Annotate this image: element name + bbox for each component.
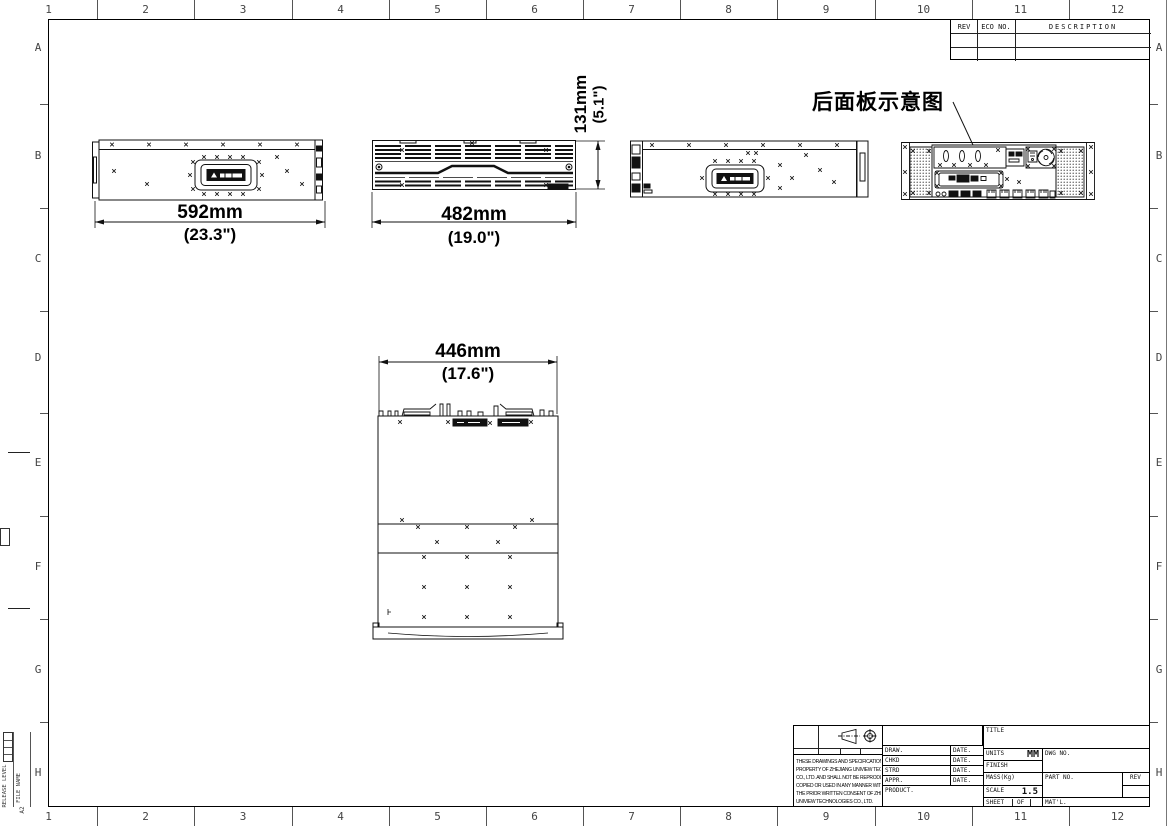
grid-col-label: 6	[486, 3, 583, 16]
vent-grille-bottom	[375, 182, 573, 186]
paper-size-label: A2	[19, 800, 27, 820]
grid-col-label: 3	[194, 3, 292, 16]
power-supply-module	[1026, 147, 1056, 168]
grid-col-label: 11	[972, 810, 1069, 823]
grid-row-tick	[40, 208, 48, 209]
vent-grille-top	[375, 146, 573, 158]
grid-col-tick	[972, 807, 973, 826]
grid-row-tick	[1150, 516, 1158, 517]
grid-row-label: C	[30, 252, 46, 265]
grid-row-label: D	[1151, 351, 1167, 364]
grid-col-tick	[680, 807, 681, 826]
dim-top-width-mm: 446mm	[398, 341, 538, 363]
rev-cell: REV	[1122, 772, 1150, 786]
fan-icon	[1038, 149, 1055, 166]
grid-row-tick	[40, 722, 48, 723]
dim-height-mm: 131mm	[571, 69, 591, 139]
proprietary-notice: THESE DRAWINGS AND SPECIFICATION ARE THE…	[793, 754, 883, 807]
title-cell: TITLE	[983, 725, 1150, 749]
grid-col-label: 5	[389, 3, 486, 16]
grid-col-tick	[875, 0, 876, 19]
empty-cell	[882, 725, 983, 746]
dim-side-width-mm: 592mm	[140, 202, 280, 224]
grid-row-label: A	[1151, 41, 1167, 54]
grid-col-label: 1	[0, 3, 97, 16]
grid-row-label: E	[1151, 456, 1167, 469]
grid-col-label: 12	[1069, 3, 1166, 16]
grid-row-label: G	[1151, 663, 1167, 676]
grid-row-label: D	[30, 351, 46, 364]
screw-marks	[400, 518, 534, 619]
dim-top-width-in: (17.6")	[398, 364, 538, 384]
grid-col-tick	[97, 0, 98, 19]
grid-col-label: 9	[777, 3, 875, 16]
grid-col-label: 3	[194, 810, 292, 823]
grid-col-tick	[777, 807, 778, 826]
side-view-right	[630, 140, 869, 198]
front-label-plate	[548, 184, 568, 189]
grid-col-tick	[389, 0, 390, 19]
grid-row-tick	[1150, 722, 1158, 723]
drawing-sheet: 123456789101112 123456789101112 ABCDEFGH…	[0, 0, 1169, 826]
eco-header: ECO NO.	[977, 23, 1015, 31]
grid-col-label: 10	[875, 3, 972, 16]
grid-col-tick	[292, 0, 293, 19]
grid-col-label: 5	[389, 810, 486, 823]
grid-col-label: 2	[97, 810, 194, 823]
vent-mesh-right	[1056, 147, 1084, 197]
revision-table: REV ECO NO. DESCRIPTION	[950, 19, 1150, 60]
grid-col-label: 7	[583, 810, 680, 823]
grid-col-label: 10	[875, 810, 972, 823]
margin-box	[0, 528, 10, 546]
scale-value: 1.5	[1022, 787, 1038, 797]
grid-col-label: 6	[486, 810, 583, 823]
mass-cell: MASS(Kg)	[983, 772, 1043, 786]
dim-side-width-in: (23.3")	[140, 225, 280, 245]
rear-panel-callout: 后面板示意图	[812, 86, 944, 116]
grid-col-label: 7	[583, 3, 680, 16]
front-view	[372, 140, 576, 190]
grid-col-tick	[486, 807, 487, 826]
matl-cell: MAT'L.	[1042, 797, 1150, 807]
grid-col-tick	[777, 0, 778, 19]
front-bezel	[373, 627, 563, 639]
center-mark-2	[8, 608, 30, 609]
grid-row-tick	[40, 104, 48, 105]
grid-row-label: F	[30, 560, 46, 573]
grid-col-tick	[97, 807, 98, 826]
margin-divider-2	[30, 732, 31, 807]
grid-col-label: 12	[1069, 810, 1166, 823]
grid-col-tick	[875, 807, 876, 826]
side-view-left	[92, 139, 323, 201]
units-value: MM	[1027, 749, 1039, 760]
grid-col-label: 4	[292, 810, 389, 823]
grid-col-tick	[1069, 0, 1070, 19]
projection-symbol-cell	[793, 725, 883, 755]
dim-height-in: (5.1")	[591, 70, 608, 140]
grid-col-label: 11	[972, 3, 1069, 16]
description-header: DESCRIPTION	[1015, 23, 1151, 31]
dimension-131-lines	[574, 136, 608, 194]
grid-row-label: F	[1151, 560, 1167, 573]
release-level-label: RELEASE LEVEL	[2, 756, 10, 816]
grid-row-tick	[1150, 413, 1158, 414]
product-cell: PRODUCT.	[882, 785, 984, 807]
grid-row-tick	[1150, 311, 1158, 312]
grid-col-label: 8	[680, 810, 777, 823]
grid-row-label: H	[1151, 766, 1167, 779]
grid-row-label: G	[30, 663, 46, 676]
grid-row-tick	[40, 516, 48, 517]
grid-col-tick	[680, 0, 681, 19]
grid-col-tick	[583, 0, 584, 19]
grid-row-label: B	[30, 149, 46, 162]
grid-row-label: H	[30, 766, 46, 779]
grid-row-tick	[40, 311, 48, 312]
grid-row-label: E	[30, 456, 46, 469]
front-notch	[375, 166, 573, 173]
grid-col-tick	[972, 0, 973, 19]
grid-row-tick	[40, 413, 48, 414]
grid-col-label: 8	[680, 3, 777, 16]
grid-row-tick	[1150, 619, 1158, 620]
dim-front-width-mm: 482mm	[404, 204, 544, 226]
sheet-cell: SHEET OF	[983, 797, 1043, 807]
grid-col-label: 1	[0, 810, 97, 823]
sheet-edge-right	[1166, 0, 1167, 826]
center-mark-1	[8, 452, 30, 453]
grid-row-label: A	[30, 41, 46, 54]
grid-col-tick	[194, 0, 195, 19]
grid-col-tick	[1069, 807, 1070, 826]
grid-col-label: 4	[292, 3, 389, 16]
grid-col-tick	[194, 807, 195, 826]
grid-row-tick	[1150, 208, 1158, 209]
grid-col-tick	[583, 807, 584, 826]
grid-col-label: 9	[777, 810, 875, 823]
grid-row-tick	[40, 619, 48, 620]
grid-col-tick	[389, 807, 390, 826]
vent-mesh-left	[910, 147, 932, 197]
rear-panel-view	[901, 142, 1095, 200]
grid-row-tick	[1150, 104, 1158, 105]
grid-col-tick	[486, 0, 487, 19]
rear-edge-fittings	[379, 404, 553, 416]
grid-row-label: C	[1151, 252, 1167, 265]
grid-col-label: 2	[97, 3, 194, 16]
margin-divider-1	[13, 732, 14, 807]
top-view	[368, 396, 568, 644]
third-angle-projection-icon	[834, 728, 882, 746]
dwg-no-cell: DWG NO.	[1042, 748, 1150, 773]
rear-panel-leader	[945, 98, 995, 148]
grid-row-label: B	[1151, 149, 1167, 162]
rev-header: REV	[951, 23, 977, 31]
dim-front-width-in: (19.0")	[404, 228, 544, 248]
orientation-mark	[388, 609, 391, 615]
grid-col-tick	[292, 807, 293, 826]
